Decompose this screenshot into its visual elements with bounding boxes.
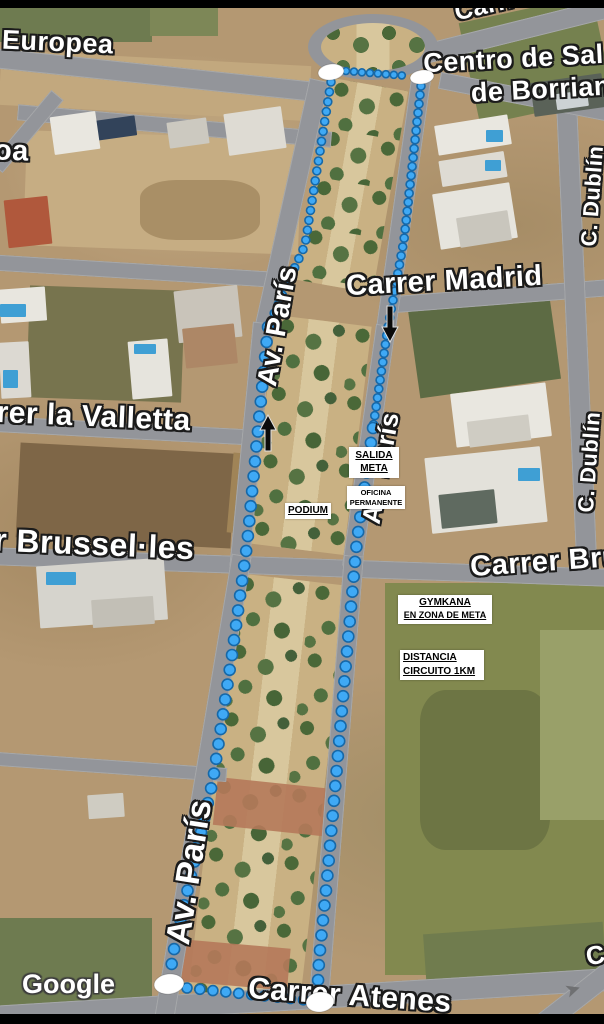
building bbox=[456, 210, 512, 248]
annotation-podium: PODIUM bbox=[285, 503, 331, 519]
poi-label-centro-de-salut: Centro de Salde Borriana bbox=[422, 37, 604, 111]
annotation-distancia: DISTANCIA CIRCUITO 1KM bbox=[400, 650, 484, 680]
annotation-line: EN ZONA DE META bbox=[404, 610, 487, 620]
annotation-line: PERMANENTE bbox=[350, 498, 403, 507]
satellite-map: Europea oa Carr. del Centro de Salde Bor… bbox=[0, 0, 604, 1024]
terrain-scrub bbox=[540, 630, 604, 820]
street-label-europea: Europea bbox=[1, 26, 114, 59]
annotation-line: META bbox=[360, 463, 388, 474]
roundabout-island bbox=[321, 23, 425, 71]
building bbox=[50, 111, 101, 155]
building bbox=[4, 196, 53, 248]
street-label-fragment-oa: oa bbox=[0, 135, 29, 167]
annotation-line: SALIDA bbox=[355, 450, 392, 461]
terrain-green-blotch bbox=[420, 690, 550, 850]
annotation-gymkana: GYMKANA EN ZONA DE META bbox=[398, 595, 492, 624]
annotation-line: OFICINA bbox=[361, 488, 392, 497]
swimming-pool bbox=[0, 304, 26, 317]
annotation-oficina-permanente: OFICINA PERMANENTE bbox=[347, 486, 405, 509]
terrain-dirt-blotch bbox=[140, 180, 260, 240]
swimming-pool bbox=[3, 370, 18, 388]
building bbox=[87, 793, 125, 819]
road-cross-left-lower bbox=[0, 752, 227, 782]
swimming-pool bbox=[486, 130, 503, 142]
building bbox=[166, 117, 209, 148]
swimming-pool bbox=[485, 160, 501, 171]
letterbox-bar-top bbox=[0, 0, 604, 8]
street-label-fragment-c: C bbox=[584, 941, 604, 971]
street-label-c-dublin-south: C. Dublín bbox=[574, 411, 604, 513]
building bbox=[182, 323, 238, 368]
annotation-line: DISTANCIA bbox=[403, 652, 457, 663]
building bbox=[91, 596, 155, 628]
building bbox=[223, 106, 286, 156]
terrain-scrub bbox=[150, 8, 218, 36]
road-cross-left bbox=[0, 255, 268, 288]
annotation-line: CIRCUITO 1KM bbox=[403, 666, 475, 677]
letterbox-bar-bottom bbox=[0, 1014, 604, 1024]
google-watermark: Google bbox=[22, 970, 115, 998]
swimming-pool bbox=[134, 344, 156, 354]
swimming-pool bbox=[518, 468, 540, 481]
swimming-pool bbox=[46, 572, 76, 585]
annotation-line: PODIUM bbox=[288, 505, 328, 516]
annotation-line: GYMKANA bbox=[419, 597, 471, 608]
building bbox=[438, 489, 497, 529]
street-label-c-dublin-north: C. Dublín bbox=[577, 145, 604, 247]
annotation-salida-meta: SALIDA META bbox=[349, 447, 399, 478]
